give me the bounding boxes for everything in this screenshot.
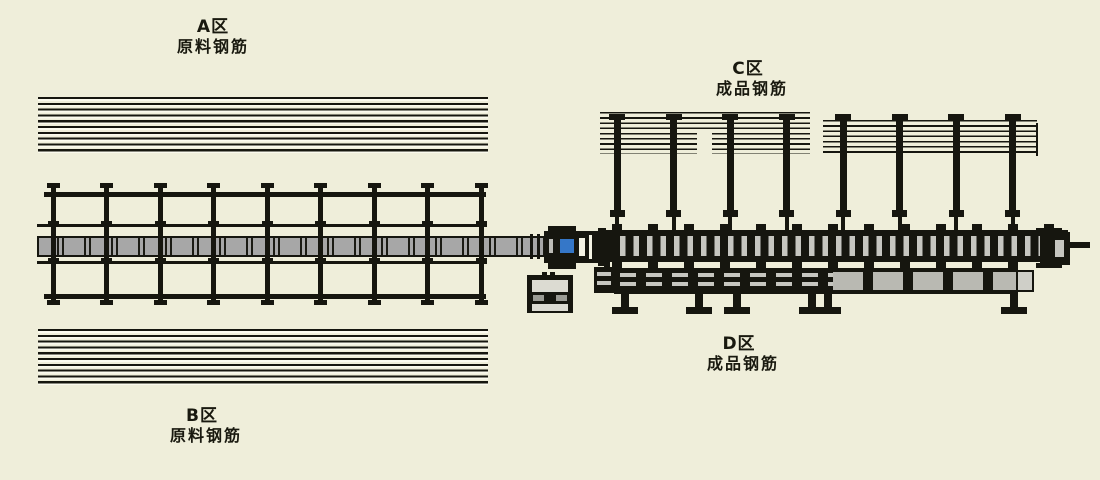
- zone-a-raw-rebar-stack: [38, 97, 488, 155]
- post-cap-mid: [476, 258, 487, 262]
- feed-rack-post: [479, 184, 484, 304]
- feed-rack-post: [318, 184, 323, 304]
- bearing-block-bottom: [720, 261, 730, 268]
- conveyor-leg: [733, 293, 741, 308]
- zone-d-subtitle: 成品钢筋: [707, 350, 779, 374]
- gantry-post: [783, 119, 790, 212]
- machine-bottom-flange: [548, 262, 576, 269]
- post-cap-bottom: [475, 300, 488, 305]
- bearing-block-top: [936, 224, 946, 231]
- post-cap-top: [100, 183, 113, 188]
- bearing-block-bottom: [756, 261, 766, 268]
- post-cap-bottom: [207, 300, 220, 305]
- zone-c-subtitle: 成品钢筋: [716, 75, 788, 99]
- post-cap-mid: [369, 258, 380, 262]
- feed-end-roller: [537, 234, 540, 259]
- post-cap-mid: [476, 221, 487, 225]
- conveyor-leg: [695, 293, 703, 308]
- stack-gap: [697, 130, 712, 155]
- bearing-block-top: [684, 224, 694, 231]
- d-conveyor-left-cap: [594, 267, 616, 293]
- layout-diagram: A区 原料钢筋 B区 原料钢筋 C区 成品钢筋 D区 成品钢筋: [0, 0, 1100, 480]
- gantry-post: [614, 119, 621, 212]
- gantry-post: [670, 119, 677, 212]
- cap-dash: [597, 281, 611, 285]
- post-cap-bottom: [421, 300, 434, 305]
- cabinet-panel-top: [532, 280, 568, 292]
- gantry-post-foot: [1005, 210, 1020, 217]
- machine-blue-actuator: [560, 239, 574, 253]
- gantry-post-stem: [1011, 217, 1015, 231]
- bearing-block-top: [648, 224, 658, 231]
- d-output-conveyor: [614, 268, 1018, 294]
- post-cap-bottom: [368, 300, 381, 305]
- d-conveyor-right-cap: [1016, 270, 1034, 292]
- gantry-post-foot: [949, 210, 964, 217]
- gantry-post: [840, 119, 847, 212]
- bearing-block-top: [756, 224, 766, 231]
- conveyor-leg-foot: [1001, 307, 1027, 314]
- bearing-block-top: [864, 224, 874, 231]
- post-cap-mid: [262, 258, 273, 262]
- feed-end-roller: [530, 234, 533, 259]
- feed-rack-post: [265, 184, 270, 304]
- cabinet-vent: [556, 295, 567, 301]
- post-cap-bottom: [314, 300, 327, 305]
- conveyor-leg-foot: [686, 307, 712, 314]
- post-cap-top: [421, 183, 434, 188]
- post-cap-top: [261, 183, 274, 188]
- post-cap-mid: [262, 221, 273, 225]
- cabinet-vent: [533, 295, 544, 301]
- d-conveyor-pallets: [833, 272, 1018, 290]
- output-conveyor: [606, 230, 1068, 262]
- bearing-block-top: [792, 224, 802, 231]
- gantry-post-foot: [892, 210, 907, 217]
- conveyor-leg: [824, 293, 832, 308]
- post-cap-bottom: [100, 300, 113, 305]
- conveyor-leg: [1010, 293, 1018, 308]
- d-conveyor-dashes: [620, 282, 833, 286]
- post-cap-mid: [369, 221, 380, 225]
- machine-guide-slot: [577, 236, 587, 258]
- end-machine-bottom-flange: [1036, 263, 1062, 268]
- d-conveyor-dashes: [620, 273, 833, 277]
- bearing-block-bottom: [936, 261, 946, 268]
- post-cap-top: [154, 183, 167, 188]
- post-cap-mid: [155, 221, 166, 225]
- feed-rack-post: [104, 184, 109, 304]
- post-cap-bottom: [154, 300, 167, 305]
- cap-dash: [597, 272, 611, 276]
- feed-rack-post: [372, 184, 377, 304]
- bearing-block-top: [828, 224, 838, 231]
- bearing-block-top: [972, 224, 982, 231]
- machine-roller-slat: [549, 239, 553, 253]
- zone-b-subtitle: 原料钢筋: [170, 422, 242, 446]
- post-cap-mid: [208, 221, 219, 225]
- bearing-block-bottom: [792, 261, 802, 268]
- bearing-block-bottom: [648, 261, 658, 268]
- end-machine-shaft: [1068, 242, 1090, 248]
- post-cap-top: [314, 183, 327, 188]
- gantry-post-stem: [728, 217, 732, 231]
- bearing-block-bottom: [1008, 261, 1018, 268]
- stack-end-tick: [1036, 123, 1038, 156]
- feed-rack-post: [51, 184, 56, 304]
- post-cap-mid: [101, 258, 112, 262]
- feed-rack-post: [425, 184, 430, 304]
- gantry-post: [727, 119, 734, 212]
- gantry-post-stem: [898, 217, 902, 231]
- gantry-post-foot: [666, 210, 681, 217]
- straightening-machine-body: [544, 231, 606, 263]
- post-cap-mid: [155, 258, 166, 262]
- post-cap-mid: [48, 221, 59, 225]
- gantry-post-stem: [841, 217, 845, 231]
- bearing-block-bottom: [684, 261, 694, 268]
- post-cap-top: [47, 183, 60, 188]
- gantry-post: [896, 119, 903, 212]
- zone-c-finished-rebar-stack: [823, 120, 1037, 155]
- bearing-block-bottom: [972, 261, 982, 268]
- gantry-post-foot: [723, 210, 738, 217]
- post-cap-top: [368, 183, 381, 188]
- bearing-block-top: [900, 224, 910, 231]
- gantry-post: [953, 119, 960, 212]
- end-machine-slat: [1055, 240, 1064, 257]
- conveyor-leg-foot: [815, 307, 841, 314]
- conveyor-leg: [808, 293, 816, 308]
- feed-rack-post: [158, 184, 163, 304]
- post-cap-top: [475, 183, 488, 188]
- conveyor-leg-foot: [612, 307, 638, 314]
- zone-b-raw-rebar-stack: [38, 329, 488, 387]
- end-machine-top-flange: [1036, 228, 1062, 233]
- bearing-block-bottom: [828, 261, 838, 268]
- cabinet-tab: [550, 272, 555, 275]
- post-cap-top: [207, 183, 220, 188]
- conveyor-leg-foot: [724, 307, 750, 314]
- cabinet-tab: [542, 272, 547, 275]
- output-conveyor-rollers: [612, 236, 1058, 256]
- feed-rack-post: [211, 184, 216, 304]
- post-cap-mid: [315, 221, 326, 225]
- machine-outlet-bracket: [598, 228, 606, 266]
- machine-gap: [589, 235, 592, 259]
- post-cap-mid: [48, 258, 59, 262]
- control-cabinet: [527, 275, 573, 313]
- gantry-post-foot: [610, 210, 625, 217]
- gantry-post-foot: [779, 210, 794, 217]
- conveyor-leg: [621, 293, 629, 308]
- gantry-post-stem: [954, 217, 958, 231]
- post-cap-bottom: [261, 300, 274, 305]
- gantry-post-stem: [672, 217, 676, 231]
- zone-a-subtitle: 原料钢筋: [177, 33, 249, 57]
- post-cap-bottom: [47, 300, 60, 305]
- gantry-post-stem: [785, 217, 789, 231]
- bearing-block-bottom: [900, 261, 910, 268]
- bearing-block-bottom: [864, 261, 874, 268]
- post-cap-mid: [208, 258, 219, 262]
- machine-top-flange: [548, 226, 576, 232]
- post-cap-mid: [422, 258, 433, 262]
- gantry-post: [1009, 119, 1016, 212]
- post-cap-mid: [315, 258, 326, 262]
- post-cap-mid: [422, 221, 433, 225]
- gantry-post-foot: [836, 210, 851, 217]
- cabinet-panel-bottom: [532, 304, 568, 311]
- post-cap-mid: [101, 221, 112, 225]
- gantry-post-stem: [615, 217, 619, 231]
